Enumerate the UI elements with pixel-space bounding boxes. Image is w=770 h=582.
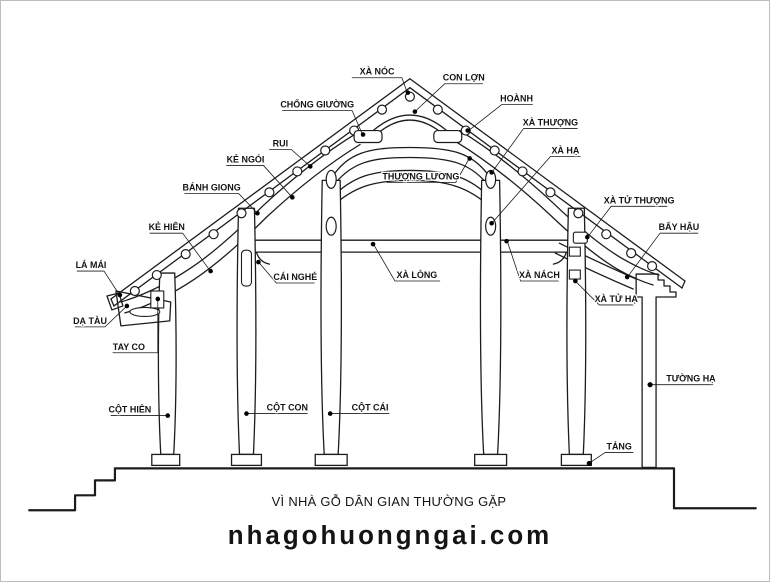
label-cai-nghe: CÁI NGHÉ (273, 271, 317, 282)
tenon (241, 250, 251, 286)
label-xa-nach: XÀ NÁCH (519, 269, 560, 280)
house-section-drawing: XÀ NÓC CON LỢN HOÀNH CHỐNG GIƯỜNG XÀ THƯ… (1, 1, 769, 581)
column-cot-con-left (237, 208, 256, 454)
leader-xa-tu-thuong (585, 206, 667, 239)
label-xa-tu-ha: XÀ TỬ HẠ (595, 293, 639, 304)
label-cot-con: CỘT CON (267, 402, 308, 413)
label-rui: RUI (273, 138, 288, 148)
plinth-tang (315, 454, 347, 465)
xa-ha-section (326, 217, 336, 235)
label-cot-hien: CỘT HIÊN (108, 404, 151, 415)
label-hoanh: HOÀNH (500, 93, 533, 104)
leader-xa-noc (352, 78, 410, 95)
label-la-mai: LÁ MÁI (76, 259, 107, 270)
label-tang: TẢNG (607, 440, 632, 451)
label-ke-hien: KẺ HIÊN (149, 221, 185, 232)
label-chong-giuong: CHỐNG GIƯỜNG (280, 99, 354, 110)
label-con-lon: CON LỢN (443, 73, 485, 83)
drawing-sheet: XÀ NÓC CON LỢN HOÀNH CHỐNG GIƯỜNG XÀ THƯ… (0, 0, 770, 582)
xa-tu-ha-section (569, 247, 580, 256)
label-xa-long: XÀ LÒNG (396, 269, 437, 280)
plinth-tang (475, 454, 507, 465)
label-thuong-luong: THƯỢNG LƯƠNG (382, 171, 459, 181)
plinth-tang (152, 454, 180, 465)
chong-giuong-block (354, 131, 382, 143)
xa-long-beam (248, 240, 575, 252)
label-xa-tu-thuong: XÀ TỬ THƯỢNG (604, 194, 675, 205)
label-bay-hau: BẨY HẬU (659, 221, 700, 232)
label-cot-cai: CỘT CÁI (352, 402, 389, 413)
wall-section (636, 274, 676, 467)
xa-thuong-section (326, 170, 336, 188)
column-cot-con-right (567, 208, 586, 454)
label-xa-ha: XÀ HẠ (551, 144, 579, 155)
label-tay-co: TAY CO (113, 342, 145, 352)
label-xa-thuong: XÀ THƯỢNG (523, 117, 578, 128)
label-tuong-ha: TƯỜNG HẠ (666, 373, 716, 384)
apex-assembly (354, 115, 462, 142)
leader-tang (587, 452, 633, 466)
columns (152, 180, 591, 465)
con-lon-piece-inner (380, 120, 440, 131)
label-xa-noc: XÀ NÓC (360, 66, 395, 77)
chong-giuong-block (434, 131, 462, 143)
tuong-ha-wall (636, 274, 676, 467)
drawing-title: VÌ NHÀ GỖ DÂN GIAN THƯỜNG GẶP (272, 494, 507, 509)
label-banh-giong: BÁNH GIONG (182, 181, 240, 192)
plinth-tang (232, 454, 262, 465)
xa-tu-ha-section (569, 270, 580, 279)
label-ke-ngoi: KẺ NGÓI (227, 153, 265, 164)
watermark-website: nhagohuongngai.com (228, 522, 552, 550)
label-da-tau: DẠ TÀU (73, 315, 107, 326)
